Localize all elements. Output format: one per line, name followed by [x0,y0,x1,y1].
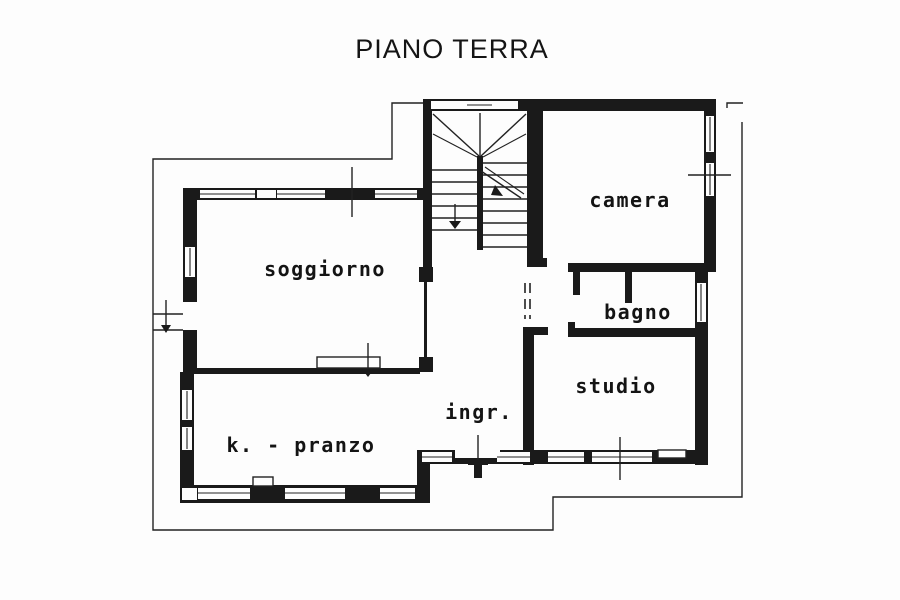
staircase [432,113,527,250]
page-title: PIANO TERRA [355,34,549,64]
stair-treads-right [483,163,527,247]
stair-winder-line [483,134,526,157]
wall-passage-line [424,282,427,358]
room-label-camera: camera [589,188,670,212]
stair-winder-line [433,134,477,157]
wall-left-upper [183,188,197,372]
stair-center-divider [477,156,483,250]
wall-bagno-stub-2 [625,272,632,303]
wall-stair-right [527,111,543,258]
door-opening-left [181,302,199,330]
masonry-block [257,190,276,198]
outer-boundary-top-right-mark [727,103,743,108]
room-labels: soggiorno camera bagno studio ingr. k. -… [227,188,672,457]
room-label-bagno: bagno [604,300,672,324]
window-sill [658,450,686,458]
wall-camera-bagno [568,263,716,272]
wall-ingresso-studio [523,335,534,465]
wall-soggiorno-pranzo-divider [183,368,420,374]
floor-plan-drawing: PIANO TERRA [0,0,900,600]
wall-passage-jamb-bottom [419,357,433,372]
entrance-arrow [468,460,488,478]
wall-bagno-studio-tick [568,322,575,328]
wall-stair-right-stub [527,258,547,267]
room-label-ingresso: ingr. [445,400,513,424]
masonry-block [492,101,518,109]
floor-plan-page: PIANO TERRA [0,0,900,600]
room-label-soggiorno: soggiorno [264,257,386,281]
wall-ingresso-studio-stub [523,327,548,335]
room-label-studio: studio [575,374,656,398]
side-door-arrowhead [161,325,171,333]
stair-winder-line [433,114,479,156]
stair-down-arrowhead [449,221,461,229]
masonry-block [431,101,467,109]
stair-direction-line [485,167,524,194]
interior-step [317,357,380,368]
stair-winder-line [481,114,526,156]
room-label-kitchen-pranzo: k. - pranzo [227,433,376,457]
window-sill [253,477,273,486]
wall-bagno-studio [568,328,695,337]
masonry-block [182,488,197,500]
wall-bagno-stub-1 [573,272,580,295]
wall-passage-jamb-top [419,267,433,282]
